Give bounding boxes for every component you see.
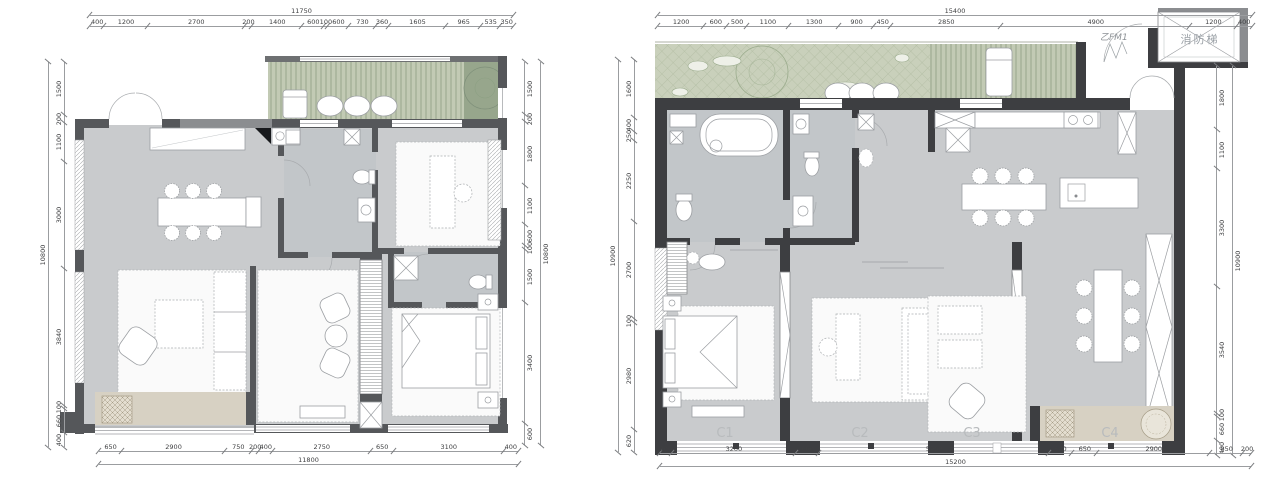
dim-label: 600 — [332, 19, 344, 26]
dim-label: 660 — [1219, 423, 1226, 435]
dim-segment: 500 — [727, 16, 746, 27]
toilet-icon — [676, 199, 692, 221]
pillow — [665, 319, 675, 349]
pillow — [476, 317, 487, 349]
dim-label: 1100 — [760, 19, 777, 26]
rp-dim-right: 1800110033003540100660400 — [1216, 66, 1227, 455]
rp-dim-left-total: 10900 — [608, 60, 619, 452]
sink-icon — [793, 114, 809, 134]
dim-segment: 3100 — [394, 441, 504, 452]
chair — [165, 184, 180, 199]
dim-label: 500 — [731, 19, 743, 26]
closet — [1146, 234, 1172, 420]
dim-segment: 400 — [504, 441, 518, 452]
left-plan-bedroom1 — [392, 294, 500, 416]
dim-segment: 1200 — [658, 16, 704, 27]
sofa — [214, 272, 246, 390]
left-plan-balcony — [95, 392, 254, 425]
dim-label: 1800 — [1219, 90, 1226, 107]
dim-segment: 2700 — [624, 222, 635, 319]
dim-segment: 2750 — [273, 441, 371, 452]
bench-seat — [246, 197, 261, 227]
dim-label: 1400 — [269, 19, 286, 26]
chair — [1124, 308, 1140, 324]
dim-label: 1200 — [1205, 19, 1222, 26]
rp-dim-top-total: 15400 — [658, 5, 1252, 16]
dim-label: 600 — [527, 230, 534, 242]
lp-dim-left-total: 10800 — [38, 62, 49, 447]
dim-segment: 1600 — [624, 60, 635, 118]
chair — [1018, 210, 1034, 226]
desk-chair — [454, 184, 472, 202]
dim-label: 600 — [307, 19, 319, 26]
dim-label: 10800 — [543, 243, 550, 264]
floor-plan-sheet: 11750 4001200270020014006001006007303601… — [0, 0, 1263, 482]
dim-segment: 850 — [1210, 443, 1243, 454]
dim-label: 2700 — [626, 262, 633, 279]
lp-dim-top-total: 11750 — [90, 5, 513, 16]
dim-segment: 10800 — [38, 62, 49, 447]
nightstand — [478, 294, 498, 310]
dim-label: 1605 — [409, 19, 426, 26]
dim-label: 1300 — [806, 19, 823, 26]
bench-seat — [692, 406, 744, 417]
dim-segment: 2850 — [891, 16, 1001, 27]
dim-label: 400 — [505, 444, 517, 451]
dim-label: 3400 — [527, 355, 534, 372]
right-plan-living — [928, 296, 1026, 432]
pillow — [665, 353, 675, 383]
dim-segment: 2980 — [624, 323, 635, 430]
entry-door-arc — [136, 93, 162, 119]
chair — [186, 184, 201, 199]
dim-label: 730 — [356, 19, 368, 26]
dim-segment: 965 — [446, 16, 481, 27]
chair — [995, 168, 1011, 184]
dining-table — [962, 184, 1046, 210]
dim-label: 600 — [710, 19, 722, 26]
dim-segment: 400 — [1237, 16, 1252, 27]
nightstand — [663, 296, 681, 311]
sofa — [938, 306, 982, 334]
dim-segment: 1800 — [1216, 66, 1227, 130]
dim-label: 535 — [485, 19, 497, 26]
dim-label: 650 — [104, 444, 116, 451]
entry-door-arc — [109, 93, 135, 119]
dim-segment: 11750 — [90, 5, 513, 16]
chair — [186, 226, 201, 241]
left-plan — [60, 56, 508, 434]
dim-label: 750 — [232, 444, 244, 451]
dim-segment: 400 — [54, 433, 65, 447]
dim-segment: 2250 — [624, 141, 635, 222]
dim-label: 5900 — [926, 446, 943, 453]
dim-segment: 15200 — [660, 456, 1251, 467]
dim-label: 3840 — [56, 329, 63, 346]
round-planter — [1141, 409, 1171, 439]
toilet-icon — [353, 170, 371, 184]
dim-label: 3540 — [1219, 342, 1226, 359]
dim-label: 1500 — [527, 268, 534, 285]
dim-segment: 3000 — [54, 162, 65, 269]
dim-segment: 3540 — [1216, 287, 1227, 413]
dim-label: 360 — [376, 19, 388, 26]
planter — [344, 96, 370, 116]
dim-segment: 660 — [1216, 417, 1227, 441]
dim-label: 2900 — [1146, 446, 1163, 453]
dim-label: 400 — [56, 434, 63, 446]
desk — [430, 156, 455, 228]
nightstand — [663, 392, 681, 407]
dim-segment: 4900 — [1001, 16, 1190, 27]
entry-door-arc — [1130, 76, 1152, 98]
toilet-icon — [805, 156, 819, 176]
dim-label: 1800 — [527, 146, 534, 163]
table — [1094, 270, 1122, 362]
dim-label: 2700 — [188, 19, 205, 26]
fire-door-label: 乙FM1 — [1100, 30, 1128, 43]
entry-door-arc — [1152, 76, 1174, 98]
chair — [1124, 280, 1140, 296]
chair — [1124, 336, 1140, 352]
dim-label: 3000 — [56, 207, 63, 224]
planter — [371, 96, 397, 116]
dim-segment: 600 — [328, 16, 350, 27]
toilet-icon — [469, 275, 487, 289]
dim-segment: 3200 — [672, 443, 796, 454]
rock — [895, 54, 909, 62]
dim-segment: 650 — [1072, 443, 1097, 454]
sofa — [938, 340, 982, 368]
dim-segment: 600 — [704, 16, 727, 27]
vanity — [793, 196, 813, 226]
desk-chair — [819, 338, 837, 356]
lp-dim-right-total: 10800 — [540, 62, 551, 445]
dim-label: 1200 — [118, 19, 135, 26]
chair — [972, 210, 988, 226]
dim-label: 900 — [850, 19, 862, 26]
dim-label: 2750 — [314, 444, 331, 451]
dim-segment: 2700 — [148, 16, 245, 27]
dim-segment: 600 — [796, 443, 819, 454]
nightstand — [478, 392, 498, 408]
dim-label: 965 — [458, 19, 470, 26]
rp-dim-bottom: 300320060059006006502900850200 — [660, 443, 1251, 454]
dim-label: 350 — [500, 19, 512, 26]
kitchen-island — [1060, 178, 1138, 208]
dim-label: 1500 — [56, 80, 63, 97]
rp-dim-left: 1600400250225027001002980620 — [624, 60, 635, 452]
dim-label: 600 — [802, 446, 814, 453]
dim-segment: 1800 — [524, 122, 535, 186]
dim-label: 400 — [1238, 19, 1250, 26]
dim-segment: 200 — [1243, 443, 1251, 454]
dim-label: 660 — [56, 415, 63, 427]
chair — [972, 168, 988, 184]
stove-icon — [1064, 112, 1098, 128]
dim-segment: 1100 — [1216, 130, 1227, 169]
chair — [1076, 280, 1092, 296]
sink-icon — [358, 198, 375, 222]
closet — [780, 272, 790, 398]
dim-label: 11800 — [298, 457, 319, 464]
chair — [1076, 336, 1092, 352]
left-plan-bedroom2 — [258, 270, 358, 422]
dim-segment: 5900 — [819, 443, 1048, 454]
lp-dim-bottom-total: 11800 — [99, 454, 518, 465]
dim-segment: 600 — [1049, 443, 1072, 454]
dim-segment: 1605 — [389, 16, 447, 27]
dim-label: 300 — [660, 446, 672, 453]
chair — [995, 210, 1011, 226]
dining-table — [158, 198, 246, 226]
lounge-chair — [283, 90, 307, 118]
side-table — [325, 325, 347, 347]
dim-label: 3300 — [1219, 220, 1226, 237]
dim-label: 450 — [876, 19, 888, 26]
dim-label: 15200 — [945, 459, 966, 466]
dressing-stool — [699, 254, 725, 270]
left-plan-terrace — [265, 56, 507, 120]
window-code-c1: C1 — [703, 426, 747, 441]
dim-label: 850 — [1220, 446, 1232, 453]
dim-label: 600 — [527, 428, 534, 440]
dim-segment: 3840 — [54, 269, 65, 406]
dim-segment: 660 — [54, 409, 65, 433]
coffee-table — [155, 300, 203, 348]
dim-segment: 535 — [481, 16, 500, 27]
chair — [1076, 308, 1092, 324]
dim-segment: 1500 — [524, 62, 535, 115]
chair — [207, 226, 222, 241]
vanity — [670, 114, 696, 127]
dim-segment: 3300 — [1216, 169, 1227, 287]
lp-dim-left: 1500200110030003840100660400 — [54, 62, 65, 447]
right-plan — [655, 8, 1248, 455]
dim-label: 10900 — [610, 246, 617, 267]
dim-segment: 1100 — [747, 16, 789, 27]
dim-label: 600 — [1054, 446, 1066, 453]
dim-label: 2900 — [165, 444, 182, 451]
dim-segment: 3400 — [524, 303, 535, 424]
dim-label: 1600 — [626, 80, 633, 97]
dim-segment: 1300 — [789, 16, 839, 27]
dim-segment: 600 — [524, 424, 535, 445]
pillow — [476, 353, 487, 385]
dim-label: 2250 — [626, 173, 633, 190]
right-plan-garden — [655, 44, 1078, 103]
dim-label: 4900 — [1087, 19, 1104, 26]
rug — [258, 270, 358, 422]
dim-label: 10900 — [1235, 250, 1242, 271]
dim-segment: 1200 — [1190, 16, 1236, 27]
dim-segment: 11800 — [99, 454, 518, 465]
dim-label: 1500 — [527, 80, 534, 97]
dim-label: 2850 — [938, 19, 955, 26]
dim-label: 1200 — [673, 19, 690, 26]
dim-segment: 1400 — [252, 16, 302, 27]
dim-label: 1100 — [56, 134, 63, 151]
dim-label: 3200 — [726, 446, 743, 453]
chair — [165, 226, 180, 241]
dim-segment: 620 — [624, 430, 635, 452]
dim-segment: 10900 — [1232, 66, 1243, 455]
dim-segment: 1500 — [524, 250, 535, 303]
chair — [1018, 168, 1034, 184]
dim-label: 620 — [626, 435, 633, 447]
dim-label: 2980 — [626, 368, 633, 385]
desk — [836, 314, 860, 380]
dim-segment: 10900 — [608, 60, 619, 452]
dim-label: 650 — [376, 444, 388, 451]
dim-label: 15400 — [945, 8, 966, 15]
dim-label: 400 — [91, 19, 103, 26]
dim-segment: 15400 — [658, 5, 1252, 16]
dim-segment: 350 — [500, 16, 513, 27]
dim-segment: 900 — [839, 16, 874, 27]
dim-segment: 10800 — [540, 62, 551, 445]
rp-dim-top: 120060050011001300900450285049001200400 — [658, 16, 1252, 27]
dim-label: 1100 — [1219, 142, 1226, 159]
dim-segment: 1100 — [524, 186, 535, 225]
dim-label: 11750 — [291, 8, 312, 15]
fire-stair-label: 消防梯 — [1166, 31, 1234, 47]
dim-segment: 730 — [349, 16, 375, 27]
dim-label: 10800 — [40, 244, 47, 265]
lp-dim-top: 4001200270020014006001006007303601605965… — [90, 16, 513, 27]
dim-segment: 2900 — [1097, 443, 1210, 454]
lp-dim-right: 15002001800110060010015003400600 — [524, 62, 535, 445]
dim-label: 650 — [1079, 446, 1091, 453]
dim-label: 1100 — [527, 197, 534, 214]
dim-segment: 2900 — [122, 441, 225, 452]
chair — [207, 184, 222, 199]
dim-segment: 1200 — [104, 16, 147, 27]
window-code-c4: C4 — [1088, 426, 1132, 441]
dim-label: 200 — [1241, 446, 1253, 453]
rp-dim-right-total: 10900 — [1232, 66, 1243, 455]
rp-dim-bottom-total: 15200 — [660, 456, 1251, 467]
lp-dim-bottom: 650290075020040027506503100400 — [99, 441, 518, 452]
rock — [672, 88, 688, 96]
dim-label: 3100 — [440, 444, 457, 451]
dim-segment: 750 — [225, 441, 252, 452]
dim-segment: 1100 — [54, 123, 65, 162]
rock — [688, 61, 708, 71]
rock — [713, 56, 741, 66]
window-code-c2: C2 — [838, 426, 882, 441]
dim-segment: 650 — [99, 441, 122, 452]
window-code-c3: C3 — [950, 426, 994, 441]
dim-segment: 650 — [371, 441, 394, 452]
dim-segment: 1500 — [54, 62, 65, 115]
left-plan-study — [396, 140, 501, 246]
dim-label: 400 — [260, 444, 272, 451]
planter — [317, 96, 343, 116]
lounge-chair — [986, 48, 1012, 96]
